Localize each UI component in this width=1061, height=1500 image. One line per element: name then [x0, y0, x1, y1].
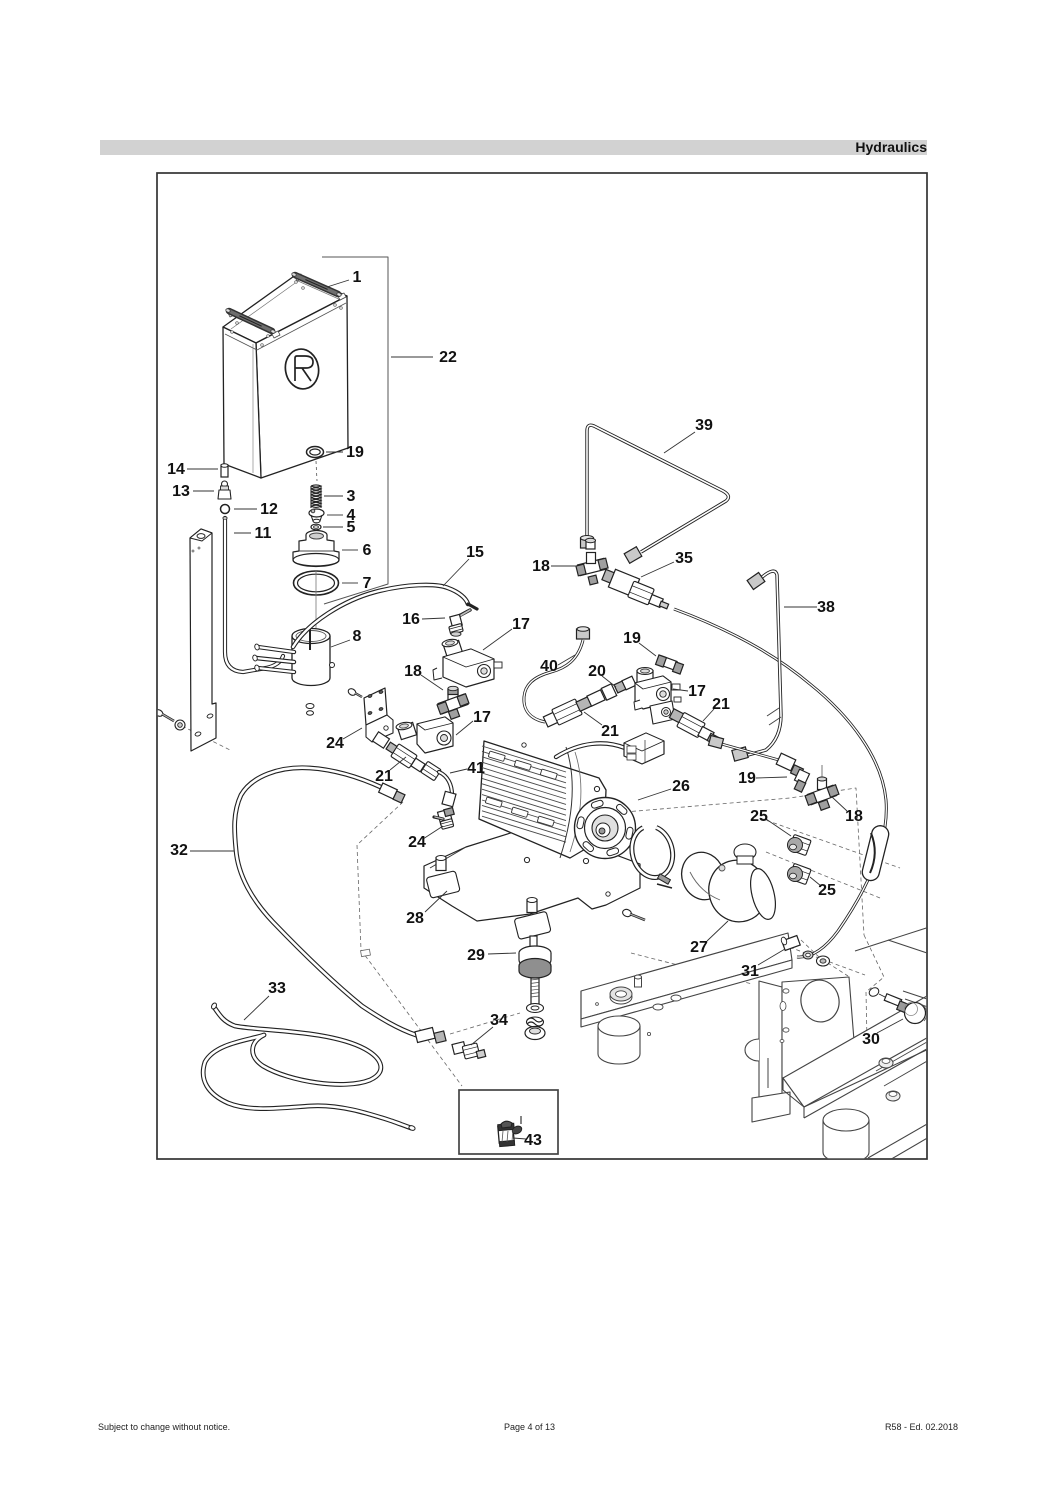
svg-text:32: 32	[170, 842, 188, 859]
svg-text:18: 18	[845, 808, 863, 825]
svg-text:6: 6	[363, 542, 372, 559]
svg-text:13: 13	[172, 483, 190, 500]
svg-text:33: 33	[268, 980, 286, 997]
svg-text:3: 3	[347, 488, 356, 505]
svg-text:1: 1	[353, 269, 362, 286]
svg-text:39: 39	[695, 417, 713, 434]
svg-text:7: 7	[363, 575, 372, 592]
svg-text:30: 30	[862, 1031, 880, 1048]
svg-text:18: 18	[404, 663, 422, 680]
svg-text:24: 24	[408, 834, 426, 851]
svg-text:35: 35	[675, 550, 693, 567]
svg-text:41: 41	[467, 760, 485, 777]
svg-text:17: 17	[512, 616, 530, 633]
svg-text:24: 24	[326, 735, 344, 752]
svg-text:21: 21	[712, 696, 730, 713]
svg-text:19: 19	[346, 444, 364, 461]
svg-text:11: 11	[255, 525, 272, 542]
svg-text:15: 15	[466, 544, 484, 561]
svg-text:26: 26	[672, 778, 690, 795]
svg-text:14: 14	[167, 461, 185, 478]
svg-text:19: 19	[623, 630, 641, 647]
svg-text:21: 21	[601, 723, 619, 740]
svg-text:5: 5	[347, 519, 356, 536]
svg-text:29: 29	[467, 947, 485, 964]
svg-text:19: 19	[738, 770, 756, 787]
svg-text:21: 21	[375, 768, 393, 785]
svg-text:27: 27	[690, 939, 708, 956]
svg-text:8: 8	[353, 628, 362, 645]
svg-text:25: 25	[750, 808, 768, 825]
svg-text:12: 12	[260, 501, 278, 518]
svg-text:40: 40	[540, 658, 558, 675]
svg-text:38: 38	[817, 599, 835, 616]
svg-text:17: 17	[688, 683, 706, 700]
svg-text:31: 31	[741, 963, 759, 980]
svg-text:17: 17	[473, 709, 491, 726]
svg-text:43: 43	[524, 1132, 542, 1149]
svg-text:34: 34	[490, 1012, 508, 1029]
svg-text:16: 16	[402, 611, 420, 628]
svg-text:28: 28	[406, 910, 424, 927]
svg-text:22: 22	[439, 349, 457, 366]
svg-text:20: 20	[588, 663, 606, 680]
svg-text:18: 18	[532, 558, 550, 575]
svg-text:25: 25	[818, 882, 836, 899]
